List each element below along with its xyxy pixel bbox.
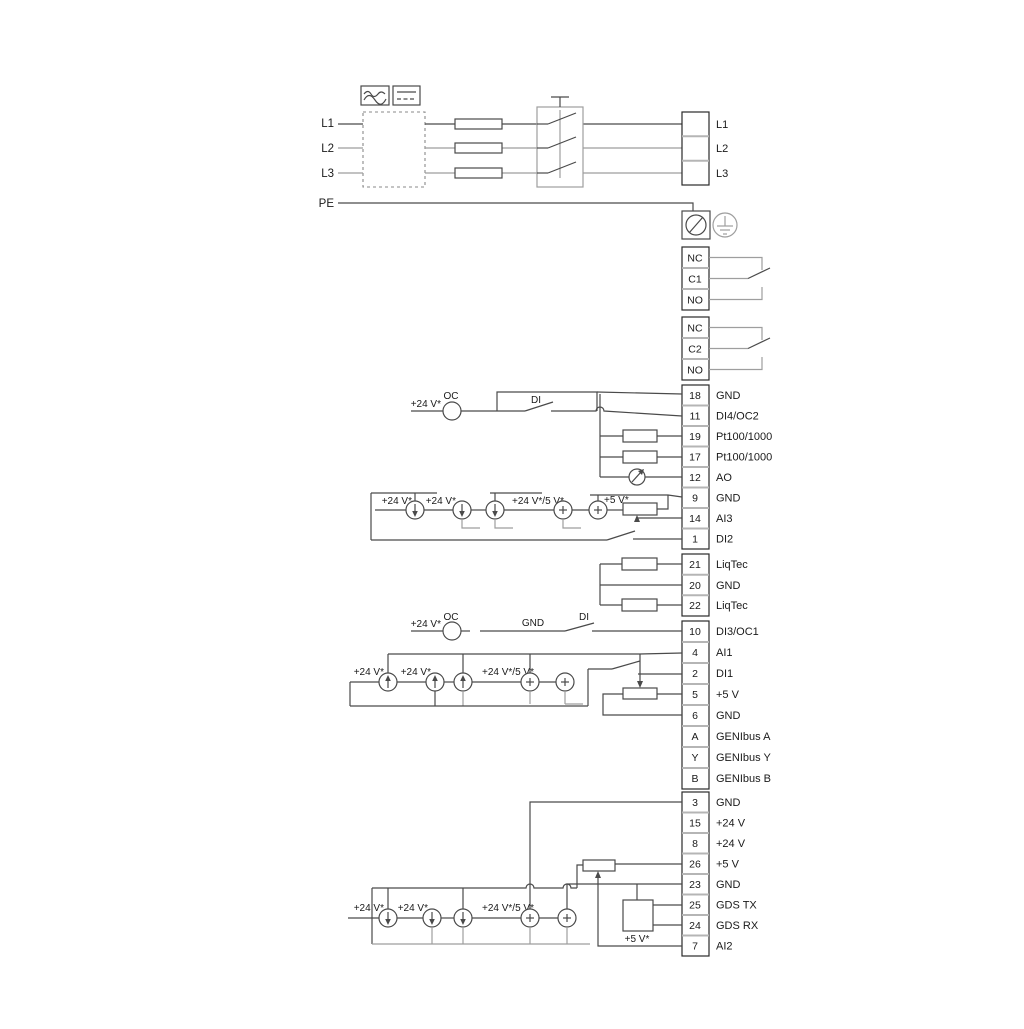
mains-label-pe: PE bbox=[319, 198, 335, 210]
terminal-label: DI1 bbox=[716, 668, 733, 680]
terminal-number: A bbox=[691, 731, 698, 743]
terminal-label: GENIbus B bbox=[716, 773, 771, 785]
terminal-number: 23 bbox=[689, 879, 701, 891]
fuse-icons bbox=[455, 119, 502, 178]
v24-label: +24 V* bbox=[401, 667, 431, 678]
liqtec-terminal-block: 21 20 22 LiqTec GND LiqTec bbox=[682, 554, 748, 616]
current-source-up-icon bbox=[426, 673, 444, 691]
relay2-nc: NC bbox=[687, 323, 703, 335]
mains-label-l2: L2 bbox=[321, 143, 334, 155]
liqtec-sensor-icon bbox=[622, 599, 657, 611]
v5-label: +5 V* bbox=[625, 934, 650, 945]
current-source-down-icon bbox=[454, 909, 472, 927]
mains-label-l1: L1 bbox=[321, 118, 334, 130]
wiring-diagram: L1 L2 L3 PE bbox=[0, 0, 1024, 1024]
page-background bbox=[0, 0, 1024, 1024]
terminal-label: AI2 bbox=[716, 941, 733, 953]
v24-label: +24 V* bbox=[354, 903, 384, 914]
ac-symbol-icon bbox=[361, 86, 389, 105]
mains-label-l3: L3 bbox=[321, 168, 334, 180]
terminal-label: L2 bbox=[716, 143, 728, 155]
terminal-label: +5 V bbox=[716, 689, 740, 701]
oc-label: OC bbox=[444, 612, 459, 623]
gds-sensor-icon bbox=[623, 900, 653, 931]
terminal-label: +24 V bbox=[716, 818, 746, 830]
v24-label: +24 V* bbox=[398, 903, 428, 914]
terminal-number: 9 bbox=[692, 493, 698, 505]
current-source-down-icon bbox=[379, 909, 397, 927]
terminal-number: Y bbox=[691, 752, 698, 764]
relay1-nc: NC bbox=[687, 253, 703, 265]
terminal-label: GND bbox=[716, 580, 741, 592]
pt100-resistor-icon bbox=[623, 451, 657, 463]
v24-label: +24 V* bbox=[411, 619, 441, 630]
fuse-l3 bbox=[455, 168, 502, 178]
terminal-number: 26 bbox=[689, 859, 701, 871]
terminal-number: 22 bbox=[689, 600, 701, 612]
terminal-number: 6 bbox=[692, 710, 698, 722]
terminal-label: Pt100/1000 bbox=[716, 452, 772, 464]
relay1-no: NO bbox=[687, 295, 703, 307]
terminal-label: +24 V bbox=[716, 838, 746, 850]
di-label: DI bbox=[531, 395, 541, 406]
terminal-label: GENIbus A bbox=[716, 731, 771, 743]
terminal-label: AI3 bbox=[716, 513, 733, 525]
terminal-number: 10 bbox=[689, 626, 701, 638]
terminal-label: GDS RX bbox=[716, 920, 759, 932]
pt100-resistor-icon bbox=[623, 430, 657, 442]
open-collector-icon bbox=[443, 402, 461, 420]
terminal-number: 25 bbox=[689, 900, 701, 912]
terminal-label: L3 bbox=[716, 168, 728, 180]
relay2-c2: C2 bbox=[688, 344, 702, 356]
terminal-number: 7 bbox=[692, 941, 698, 953]
terminal-number: 12 bbox=[689, 472, 701, 484]
v24-label: +24 V* bbox=[411, 399, 441, 410]
terminal-label: Pt100/1000 bbox=[716, 431, 772, 443]
terminal-number: 17 bbox=[689, 452, 701, 464]
liqtec-sensor-icon bbox=[622, 558, 657, 570]
v24-label: +24 V* bbox=[354, 667, 384, 678]
supply-plus-icon bbox=[554, 501, 572, 519]
v24-label: +24 V* bbox=[426, 496, 456, 507]
terminal-number: 4 bbox=[692, 647, 698, 659]
terminal-label: DI3/OC1 bbox=[716, 626, 759, 638]
fuse-l1 bbox=[455, 119, 502, 129]
terminal-label: +5 V bbox=[716, 859, 740, 871]
terminal-number: 14 bbox=[689, 513, 701, 525]
terminal-number: 21 bbox=[689, 559, 701, 571]
supply-plus-icon bbox=[521, 909, 539, 927]
terminal-number: 2 bbox=[692, 668, 698, 680]
terminal-number: 19 bbox=[689, 431, 701, 443]
terminal-label: LiqTec bbox=[716, 559, 748, 571]
current-source-down-icon bbox=[486, 501, 504, 519]
terminal-number: 11 bbox=[690, 411, 701, 423]
terminal-number: 20 bbox=[689, 580, 701, 592]
terminal-number: 3 bbox=[692, 797, 698, 809]
terminal-number: 5 bbox=[692, 689, 698, 701]
di-label: DI bbox=[579, 612, 589, 623]
terminal-number: 24 bbox=[689, 920, 701, 932]
supply-plus-icon bbox=[556, 673, 574, 691]
terminal-label: GND bbox=[716, 390, 741, 402]
terminal-number: B bbox=[691, 773, 698, 785]
terminal-label: GND bbox=[716, 710, 741, 722]
fuse-l2 bbox=[455, 143, 502, 153]
terminal-number: 1 bbox=[692, 534, 698, 546]
analog-output-meter-icon bbox=[629, 469, 645, 485]
terminal-number: 18 bbox=[689, 390, 701, 402]
terminal-label: DI4/OC2 bbox=[716, 411, 759, 423]
terminal-label: GDS TX bbox=[716, 900, 757, 912]
terminal-number: 15 bbox=[689, 818, 701, 830]
terminal-label: AI1 bbox=[716, 647, 733, 659]
terminal-label: AO bbox=[716, 472, 732, 484]
supply-plus-icon bbox=[521, 673, 539, 691]
terminal-label: LiqTec bbox=[716, 600, 748, 612]
terminal-label: GENIbus Y bbox=[716, 752, 771, 764]
current-source-down-icon bbox=[423, 909, 441, 927]
open-collector-icon bbox=[443, 622, 461, 640]
pe-terminal-icon bbox=[682, 211, 710, 239]
current-source-up-icon bbox=[454, 673, 472, 691]
potentiometer-icon bbox=[623, 688, 657, 699]
supply-plus-icon bbox=[558, 909, 576, 927]
terminal-label: L1 bbox=[716, 119, 728, 131]
oc-label: OC bbox=[444, 391, 459, 402]
mains-terminal-block: L1 L2 L3 bbox=[682, 112, 728, 185]
gnd-label: GND bbox=[522, 618, 544, 629]
terminal-number: 8 bbox=[692, 838, 698, 850]
wiring-diagram-page: L1 L2 L3 PE bbox=[0, 0, 1024, 1024]
terminal-label: GND bbox=[716, 493, 741, 505]
terminal-label: GND bbox=[716, 879, 741, 891]
current-source-up-icon bbox=[379, 673, 397, 691]
current-source-down-icon bbox=[453, 501, 471, 519]
terminal-label: GND bbox=[716, 797, 741, 809]
current-source-down-icon bbox=[406, 501, 424, 519]
dc-symbol-icon bbox=[393, 86, 420, 105]
terminal-label: DI2 bbox=[716, 534, 733, 546]
relay2-no: NO bbox=[687, 365, 703, 377]
relay1-c1: C1 bbox=[688, 274, 702, 286]
